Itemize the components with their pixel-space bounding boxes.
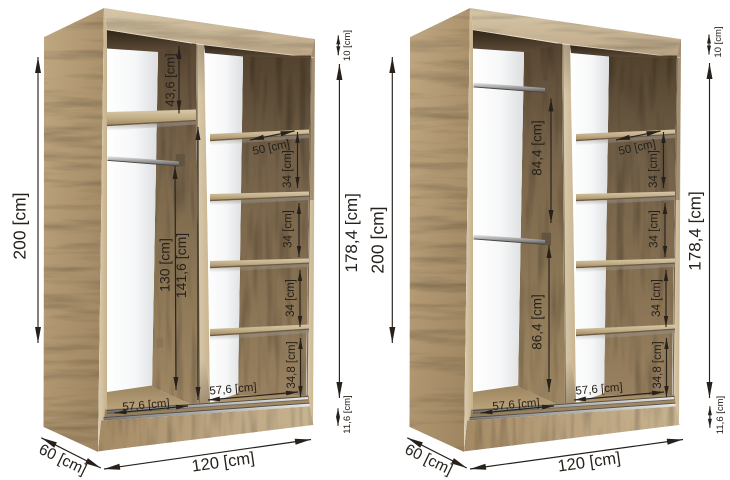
svg-text:178,4 [cm]: 178,4 [cm] [342, 193, 361, 272]
svg-text:43,6 [cm]: 43,6 [cm] [163, 53, 178, 106]
svg-text:11,6 [cm]: 11,6 [cm] [342, 395, 353, 433]
svg-text:11,6 [cm]: 11,6 [cm] [715, 396, 726, 434]
svg-text:141,6 [cm]: 141,6 [cm] [173, 233, 189, 298]
svg-text:178,4 [cm]: 178,4 [cm] [685, 191, 704, 270]
svg-text:200 [cm]: 200 [cm] [10, 192, 30, 259]
svg-text:120 [cm]: 120 [cm] [557, 449, 622, 476]
svg-text:10 [cm]: 10 [cm] [342, 30, 353, 61]
svg-text:86,4 [cm]: 86,4 [cm] [530, 294, 545, 350]
svg-text:34 [cm]: 34 [cm] [285, 279, 297, 317]
svg-text:34 [cm]: 34 [cm] [283, 210, 295, 248]
svg-text:34,8 [cm]: 34,8 [cm] [652, 341, 664, 388]
svg-text:34 [cm]: 34 [cm] [649, 210, 661, 248]
svg-text:84,4 [cm]: 84,4 [cm] [530, 120, 545, 176]
svg-text:60 [cm]: 60 [cm] [402, 441, 455, 479]
svg-text:34 [cm]: 34 [cm] [651, 279, 663, 317]
svg-text:34 [cm]: 34 [cm] [648, 150, 660, 188]
svg-text:34,8 [cm]: 34,8 [cm] [286, 341, 298, 388]
svg-text:60 [cm]: 60 [cm] [36, 441, 89, 479]
svg-text:10 [cm]: 10 [cm] [713, 26, 724, 57]
svg-text:120 [cm]: 120 [cm] [191, 449, 256, 476]
svg-text:130 [cm]: 130 [cm] [156, 238, 172, 292]
svg-text:34 [cm]: 34 [cm] [282, 150, 294, 188]
svg-text:200 [cm]: 200 [cm] [368, 206, 388, 273]
